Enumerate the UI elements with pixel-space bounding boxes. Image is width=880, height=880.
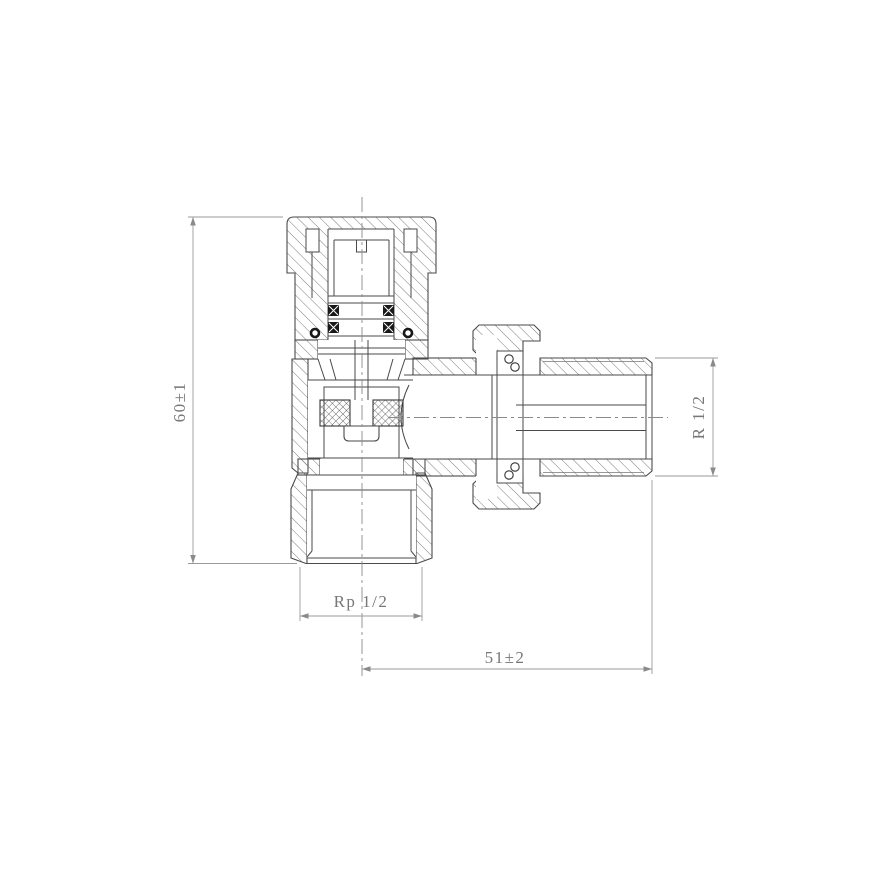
dim-inlet-thread-label: Rp 1/2: [334, 592, 389, 611]
inlet-port-right-wall: [416, 473, 432, 564]
valve-disc: [344, 426, 379, 441]
outlet-tailpiece-bottom: [540, 459, 652, 476]
dim-outlet-length-label: 51±2: [485, 648, 526, 667]
technical-drawing-page: 60±1 R 1/2 Rp 1/2 51±2: [0, 0, 880, 880]
outlet-tailpiece-top: [540, 358, 652, 375]
valve-cross-section-drawing: 60±1 R 1/2 Rp 1/2 51±2: [0, 0, 880, 880]
inlet-port-left-wall: [291, 473, 307, 564]
dim-overall-height-label: 60±1: [170, 382, 189, 423]
interior-cavities: [307, 229, 646, 558]
dim-outlet-thread-label: R 1/2: [689, 395, 708, 440]
